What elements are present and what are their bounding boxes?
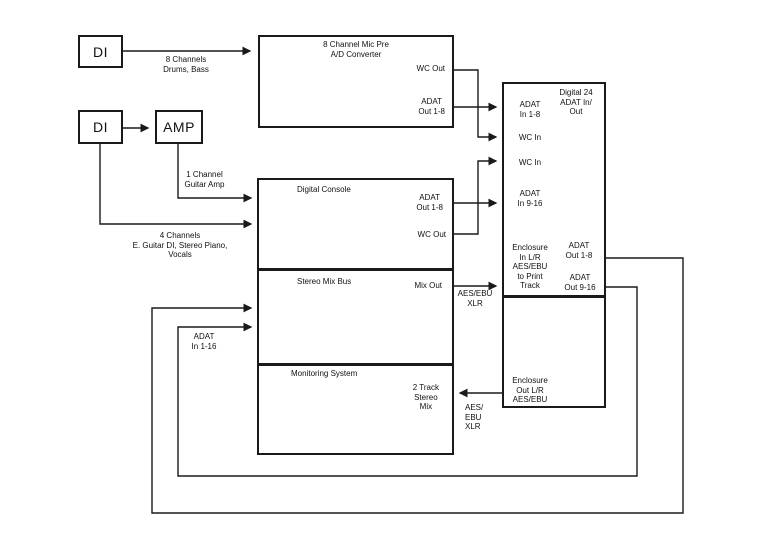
digital24-title: Digital 24 ADAT In/ Out xyxy=(553,88,599,117)
amp-box: AMP xyxy=(155,110,203,144)
digital24-box: Digital 24 ADAT In/ Out ADAT In 1-8 WC I… xyxy=(502,82,606,408)
label-adat-in-1-16: ADAT In 1-16 xyxy=(182,332,226,351)
console-divider-1 xyxy=(259,268,452,271)
digital-console-title: Digital Console xyxy=(297,185,351,195)
console-port-adat-out: ADAT Out 1-8 xyxy=(416,193,443,212)
edge-console-wc-to-wcin2 xyxy=(454,161,496,234)
label-4-channels: 4 Channels E. Guitar DI, Stereo Piano, V… xyxy=(115,231,245,260)
amp-label: AMP xyxy=(163,119,195,135)
digital24-port-adat-out-1-8: ADAT Out 1-8 xyxy=(558,241,600,260)
digital24-port-wc-in-1: WC In xyxy=(512,133,548,143)
edge-micpre-wc-to-wcin1 xyxy=(454,70,496,137)
digital24-port-adat-out-9-16: ADAT Out 9-16 xyxy=(558,273,602,292)
mic-pre-box: 8 Channel Mic Pre A/D Converter WC Out A… xyxy=(258,35,454,128)
console-divider-2 xyxy=(259,363,452,366)
console-port-two-track: 2 Track Stereo Mix xyxy=(413,383,439,412)
label-aes-ebu-xlr-twotrack: AES/ EBU XLR xyxy=(465,403,495,432)
di-drums-label: DI xyxy=(93,44,108,60)
digital24-port-enclosure-in: Enclosure In L/R AES/EBU to Print Track xyxy=(507,243,553,291)
signal-flow-diagram: DI DI AMP 8 Channel Mic Pre A/D Converte… xyxy=(0,0,768,543)
mic-pre-port-wc-out: WC Out xyxy=(417,64,445,74)
mic-pre-port-adat-out: ADAT Out 1-8 xyxy=(418,97,445,116)
di-guitar-box: DI xyxy=(78,110,123,144)
mic-pre-title: 8 Channel Mic Pre A/D Converter xyxy=(260,40,452,59)
digital24-divider xyxy=(504,295,604,298)
di-guitar-label: DI xyxy=(93,119,108,135)
console-stack-box: Digital Console ADAT Out 1-8 WC Out Ster… xyxy=(257,178,454,455)
label-8-channels-drums-bass: 8 Channels Drums, Bass xyxy=(140,55,232,74)
label-aes-ebu-xlr-mixout: AES/EBU XLR xyxy=(454,289,496,308)
monitoring-system-title: Monitoring System xyxy=(291,369,357,379)
console-port-mix-out: Mix Out xyxy=(414,281,442,291)
console-port-wc-out: WC Out xyxy=(418,230,446,240)
digital24-port-adat-in-9-16: ADAT In 9-16 xyxy=(510,189,550,208)
digital24-port-enclosure-out: Enclosure Out L/R AES/EBU xyxy=(507,376,553,405)
stereo-mix-bus-title: Stereo Mix Bus xyxy=(297,277,351,287)
di-drums-box: DI xyxy=(78,35,123,68)
label-1-channel-guitar-amp: 1 Channel Guitar Amp xyxy=(178,170,231,189)
digital24-port-adat-in-1-8: ADAT In 1-8 xyxy=(512,100,548,119)
digital24-port-wc-in-2: WC In xyxy=(512,158,548,168)
